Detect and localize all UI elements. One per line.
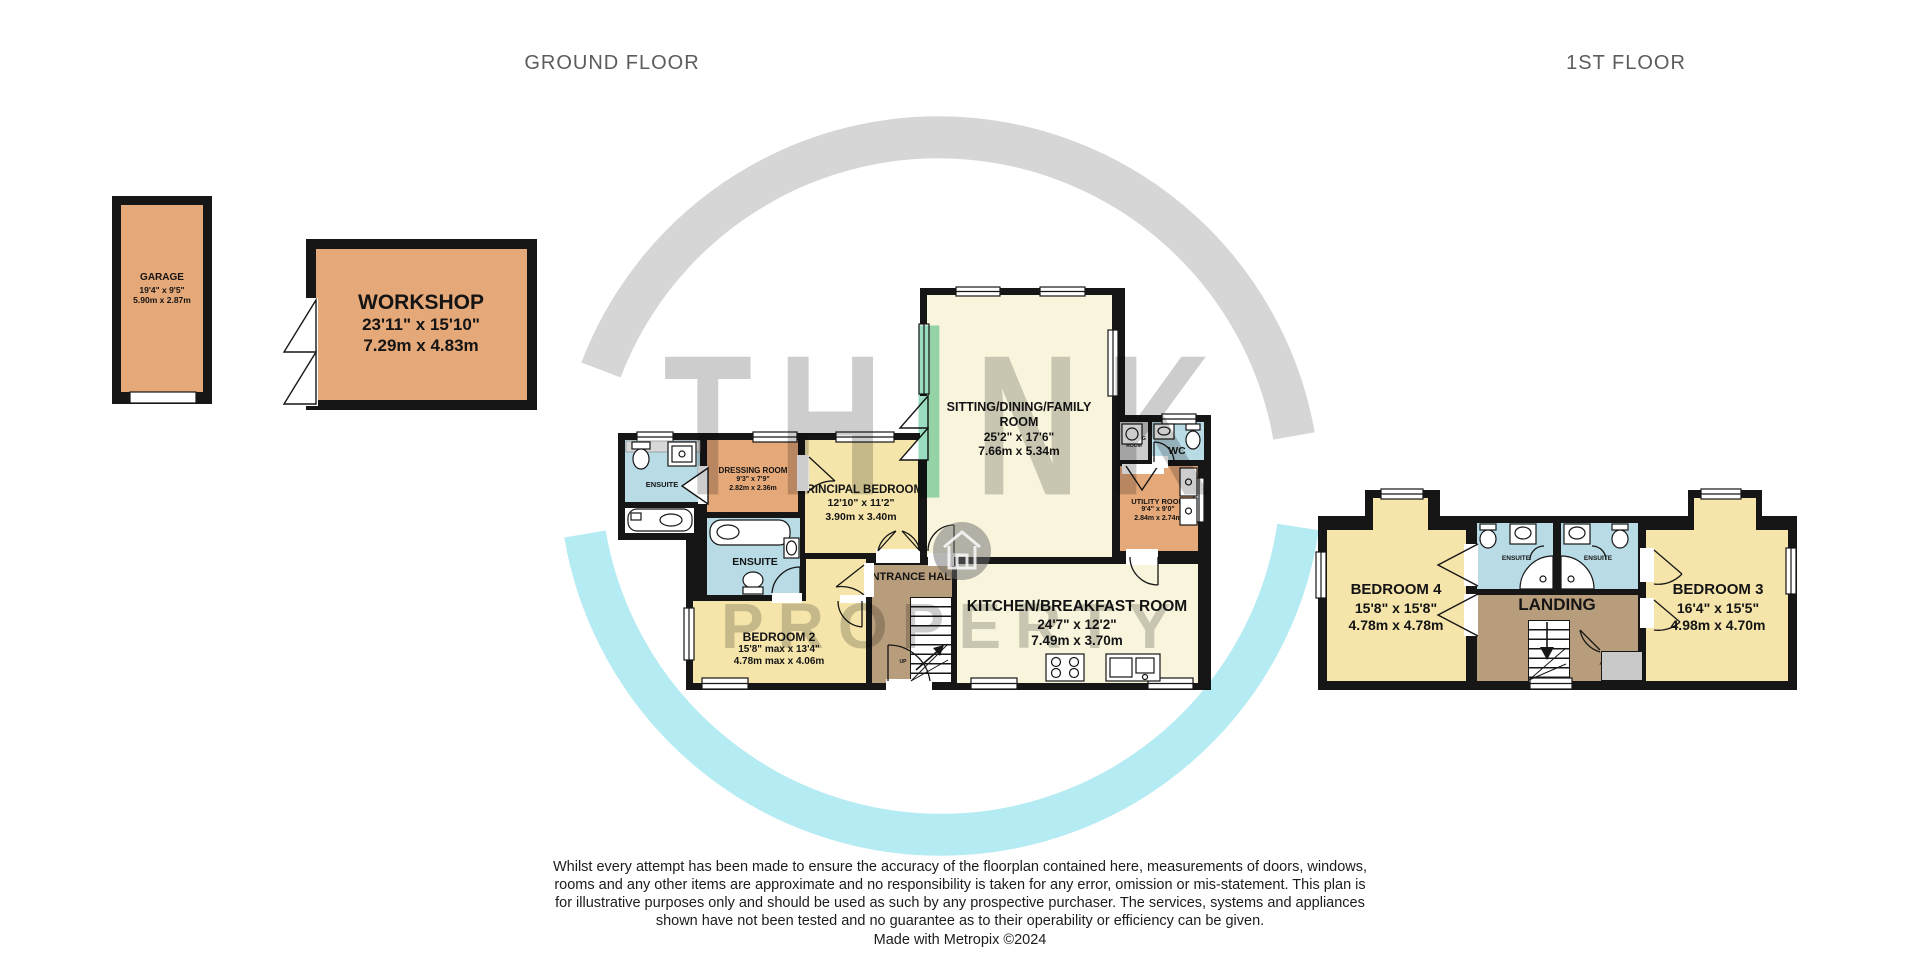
workshop-door-icon: [284, 300, 316, 352]
shower-icon: [1561, 556, 1594, 589]
garage-door-opening: [130, 392, 196, 403]
floorplan-canvas: GROUND FLOOR 1ST FLOOR: [0, 0, 1920, 961]
hob-icon: [1046, 654, 1084, 681]
sitting-french-door-icon: [900, 396, 928, 428]
windows: [130, 287, 1796, 689]
toilet-icon: [1186, 424, 1200, 430]
shower-icon: [1520, 556, 1553, 589]
toilet-icon: [743, 572, 763, 588]
chevron-doors: [284, 298, 1478, 636]
toilet-icon: [1612, 524, 1628, 530]
toilet-icon: [1480, 524, 1496, 530]
plan-details-overlay: [0, 0, 1920, 961]
toilet-icon: [632, 442, 650, 449]
ensuite-bifold-icon: [682, 468, 708, 504]
